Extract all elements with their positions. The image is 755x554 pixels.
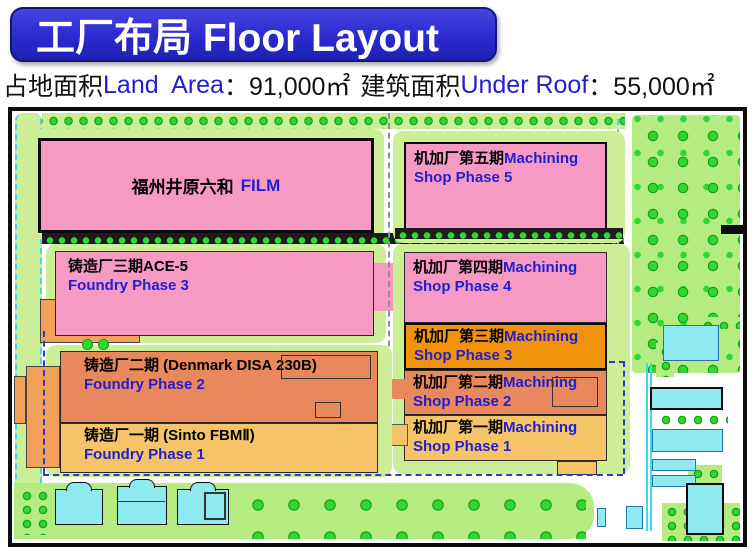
under-roof-label-zh: 建筑面积 [360,67,460,103]
building-machining-shop-phase-2: 机加厂第二期Machining Shop Phase 2 [404,370,607,415]
warehouse-entrance [129,479,155,488]
utility-building [652,459,696,471]
building-machining-shop-phase-3: 机加厂第三期Machining Shop Phase 3 [404,323,607,370]
tree-row-mid-right [395,228,623,239]
under-roof-label-en: Under Roof [460,71,588,100]
plant-layout-map: 福州井原六和FILM 铸造厂三期ACE-5 Foundry Phase 3 机加… [8,107,747,547]
building-machining-shop-phase-5-label: 机加厂第五期Machining Shop Phase 5 [406,144,605,187]
boundary-line [43,474,623,476]
tree-rows-bottom [234,483,586,539]
building-machining-shop-phase-3-label: 机加厂第三期Machining Shop Phase 3 [406,325,605,365]
warehouse-building [117,486,167,525]
area-stats: 占地面积Land Area：91,000㎡建筑面积Under Roof：55,0… [3,66,755,104]
building-foundry-phase-1-label: 铸造厂一期 (Sinto FBMⅡ) Foundry Phase 1 [61,424,377,464]
building-foundry-phase-3-label: 铸造厂三期ACE-5 Foundry Phase 3 [56,252,373,295]
boundary-line [623,361,625,474]
building-machining-shop-phase-1-label: 机加厂第一期Machining Shop Phase 1 [405,416,606,456]
border-notch [721,225,743,234]
slide: 工厂布局 Floor Layout 占地面积Land Area：91,000㎡建… [0,0,755,554]
boundary-line [43,331,45,474]
building-film-label: 福州井原六和FILM [41,141,371,230]
page-title-banner: 工厂布局 Floor Layout [10,7,497,62]
building-foundry-phase-2: 铸造厂二期 (Denmark DISA 230B) Foundry Phase … [60,351,378,423]
utility-building [652,429,723,452]
under-roof-value: ：55,000㎡ [588,67,714,103]
warehouse-building [55,489,103,525]
building-machining-shop-phase-5: 机加厂第五期Machining Shop Phase 5 [404,142,607,233]
building-machining-shop-phase-4-label: 机加厂第四期Machining Shop Phase 4 [405,253,606,296]
utility-building [650,387,723,410]
tree [98,339,109,350]
utility-building [686,483,724,535]
warehouse-entrance [190,482,216,491]
tree-cluster-left [17,487,53,535]
foundry-left-annex-small [14,376,26,424]
land-area-value: ：91,000㎡ [224,67,350,103]
tree-row-small [656,411,728,425]
building-machining-shop-phase-4: 机加厂第四期Machining Shop Phase 4 [404,252,607,323]
building-film: 福州井原六和FILM [38,138,374,233]
warehouse-building [177,489,229,525]
utility-building [663,325,719,361]
gate-booth [597,508,606,527]
land-area-label-en: Land Area [103,71,224,100]
building-foundry-phase-3: 铸造厂三期ACE-5 Foundry Phase 3 [55,251,374,336]
building-machining-shop-phase-1: 机加厂第一期Machining Shop Phase 1 [404,415,607,461]
tree-row-top [42,113,625,129]
tree [82,339,93,350]
page-title: 工厂布局 Floor Layout [12,7,439,63]
building-foundry-phase-1: 铸造厂一期 (Sinto FBMⅡ) Foundry Phase 1 [60,423,378,473]
machining1-tail [557,461,597,475]
gate-booth [626,506,643,529]
boundary-line [609,361,625,363]
warehouse-entrance [66,482,92,491]
land-area-label-zh: 占地面积 [3,67,103,103]
lawn-bottom-strip [14,483,594,539]
